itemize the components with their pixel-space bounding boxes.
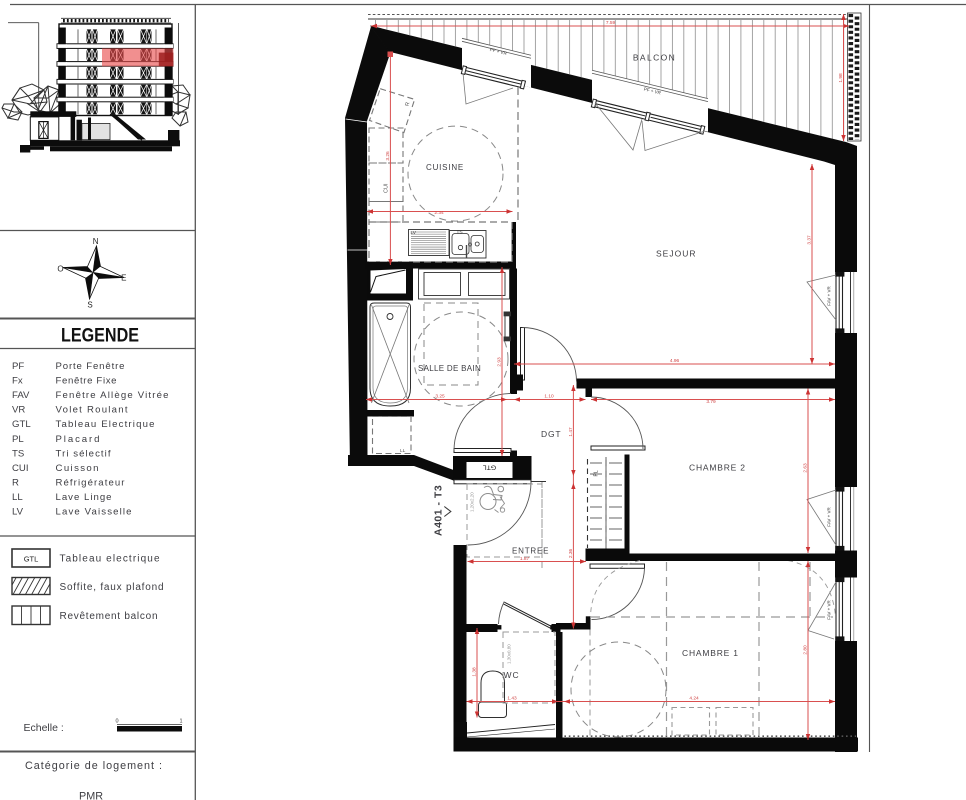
svg-text:S: S [87,301,92,310]
svg-text:Fx: Fx [12,376,23,387]
svg-text:TS: TS [457,230,463,236]
svg-text:TS: TS [12,448,24,459]
svg-text:1,20x2,20: 1,20x2,20 [470,492,475,512]
svg-text:PMR: PMR [79,791,103,800]
svg-text:ENTREE: ENTREE [512,547,549,556]
svg-text:1.98: 1.98 [838,73,844,83]
svg-text:Porte Fenêtre: Porte Fenêtre [56,361,125,372]
svg-text:Tableau Electrique: Tableau Electrique [56,419,155,430]
svg-text:3.79: 3.79 [706,399,716,405]
svg-text:WC: WC [504,670,520,680]
svg-text:LL: LL [12,492,23,503]
svg-text:Lave Vaisselle: Lave Vaisselle [56,507,132,518]
svg-text:Tableau electrique: Tableau electrique [60,554,160,565]
svg-text:LEGENDE: LEGENDE [61,326,139,347]
svg-text:DGT: DGT [541,429,561,439]
svg-text:1.87: 1.87 [520,556,530,562]
svg-text:1,30x0,80: 1,30x0,80 [507,644,512,664]
svg-text:SALLE DE BAIN: SALLE DE BAIN [418,364,481,373]
svg-text:GTL: GTL [12,419,31,430]
svg-text:Lave Linge: Lave Linge [56,492,112,503]
svg-text:0: 0 [115,719,118,725]
svg-text:VR: VR [12,405,25,416]
svg-text:CHAMBRE 1: CHAMBRE 1 [682,648,739,658]
svg-text:3.26: 3.26 [385,151,391,161]
svg-text:Echelle :: Echelle : [24,722,64,734]
svg-text:4.96: 4.96 [670,358,680,364]
svg-text:R: R [12,477,19,488]
svg-text:PL: PL [12,434,24,445]
svg-text:GTL: GTL [483,464,496,471]
svg-text:2.80: 2.80 [802,645,808,655]
svg-text:3.37: 3.37 [806,235,812,245]
svg-text:SEJOUR: SEJOUR [656,249,696,259]
svg-text:1.10: 1.10 [544,394,554,400]
svg-text:O: O [57,265,63,274]
svg-text:GTL: GTL [24,555,39,564]
svg-text:4.24: 4.24 [689,696,699,702]
svg-text:FAV: FAV [12,390,30,401]
svg-text:Revêtement balcon: Revêtement balcon [60,611,158,622]
svg-text:Soffite, faux plafond: Soffite, faux plafond [60,582,164,593]
svg-text:CHAMBRE 2: CHAMBRE 2 [689,463,746,473]
svg-text:2.93: 2.93 [496,357,502,367]
svg-text:Catégorie de logement :: Catégorie de logement : [25,760,162,772]
svg-text:LL: LL [400,448,406,454]
svg-text:1.38: 1.38 [471,667,477,677]
svg-text:CUI: CUI [12,463,29,474]
svg-text:1.43: 1.43 [507,696,517,702]
svg-text:CUI: CUI [384,183,390,193]
svg-text:Fenêtre Fixe: Fenêtre Fixe [56,376,117,387]
svg-text:LV: LV [411,230,417,236]
svg-text:BALCON: BALCON [633,53,676,63]
svg-text:2.36: 2.36 [568,549,574,559]
svg-text:Fenêtre Allège Vitrée: Fenêtre Allège Vitrée [56,390,169,401]
svg-text:2.34: 2.34 [434,210,444,216]
svg-text:7.59: 7.59 [606,20,616,26]
svg-text:2.63: 2.63 [802,463,808,473]
svg-text:A401 - T3: A401 - T3 [433,485,445,536]
svg-text:CUISINE: CUISINE [426,163,464,172]
svg-text:1: 1 [179,719,182,725]
svg-text:PL: PL [594,470,600,476]
svg-text:3.25: 3.25 [435,394,445,400]
svg-text:Réfrigérateur: Réfrigérateur [56,477,126,488]
svg-text:FAV + VR: FAV + VR [827,506,832,526]
svg-text:Tri sélectif: Tri sélectif [56,448,111,459]
svg-text:FAV + VR: FAV + VR [827,599,832,619]
svg-text:PF: PF [12,361,24,372]
svg-text:Volet Roulant: Volet Roulant [56,405,128,416]
svg-text:FAV + VR: FAV + VR [827,285,832,305]
svg-text:E: E [121,274,126,283]
svg-text:1.47: 1.47 [568,427,574,437]
svg-text:N: N [93,237,99,246]
svg-text:LV: LV [12,507,24,518]
